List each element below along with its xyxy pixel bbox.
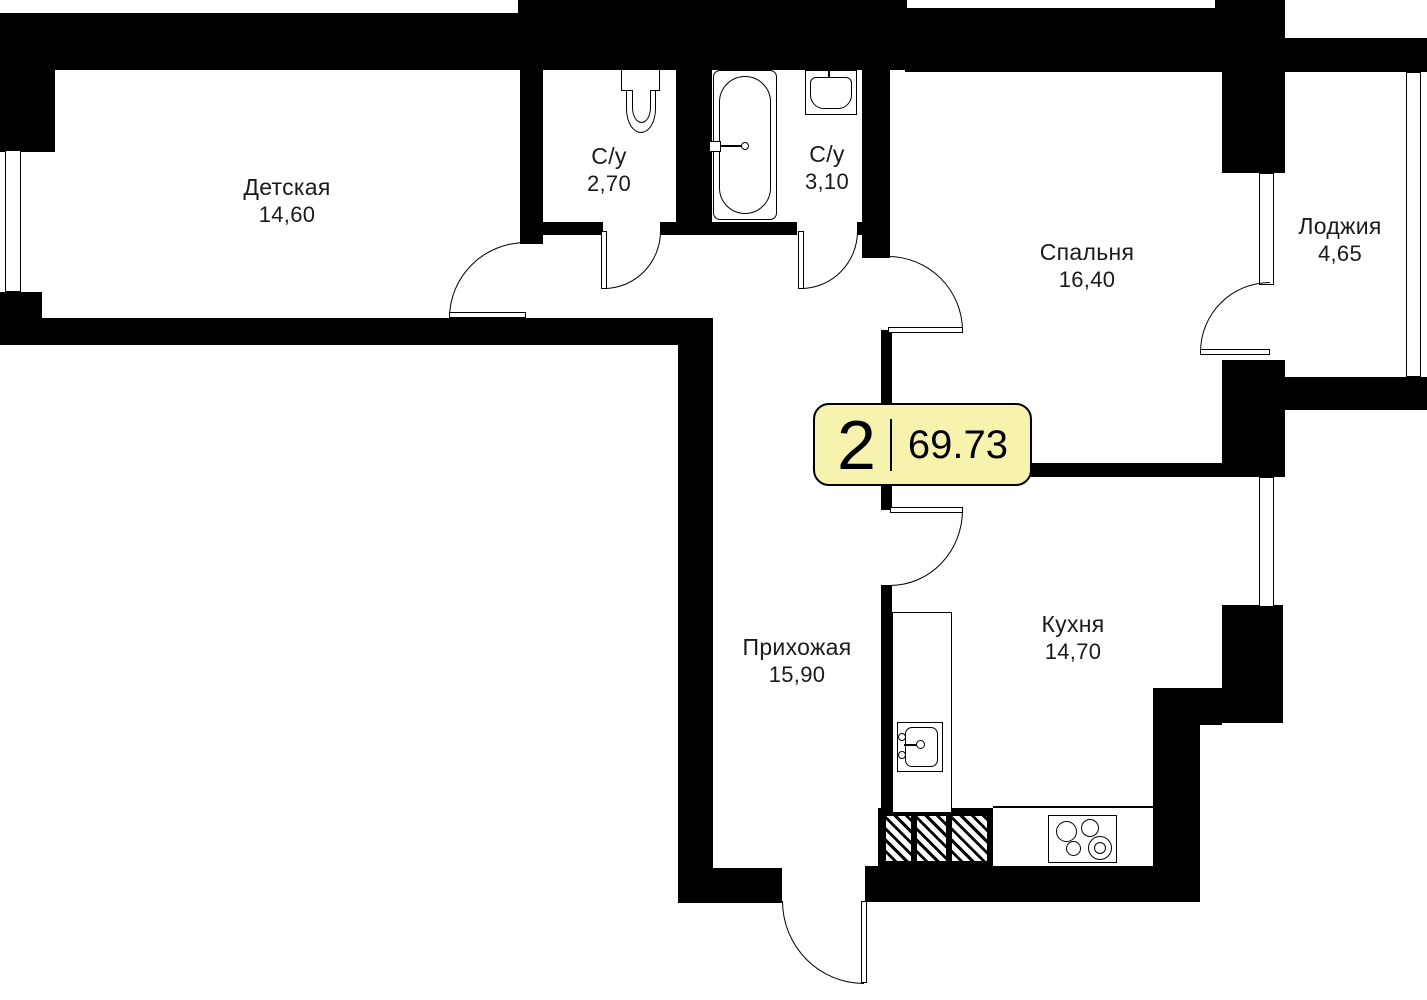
door-arc [890, 510, 963, 586]
room-label-spalnya: Спальня 16,40 [987, 239, 1187, 293]
area-badge: 2 69.73 [813, 403, 1032, 486]
wall [857, 222, 890, 235]
badge-divider [890, 419, 892, 471]
room-name: С/у [777, 141, 877, 168]
room-label-loggia: Лоджия 4,65 [1260, 213, 1420, 267]
vent-shaft [952, 816, 987, 861]
kitchen-sink-knob [898, 733, 906, 741]
room-area: 3,10 [777, 168, 877, 195]
wall [1222, 605, 1283, 723]
floor-plan: Детская 14,60 С/у 2,70 С/у 3,10 Спальня … [0, 0, 1427, 1000]
wall [0, 13, 520, 70]
room-area: 4,65 [1260, 240, 1420, 267]
room-name: Спальня [987, 239, 1187, 266]
stove-burner [1081, 819, 1099, 837]
wall [1285, 377, 1427, 410]
door-leaf [890, 507, 963, 513]
badge-rooms-count: 2 [837, 410, 876, 480]
wall [881, 585, 892, 810]
room-name: Прихожая [697, 634, 897, 661]
wall [676, 68, 712, 235]
wall [1222, 72, 1285, 173]
kitchen-sink-knob [898, 751, 906, 759]
room-name: Лоджия [1260, 213, 1420, 240]
wall [1215, 0, 1285, 72]
window [1259, 477, 1274, 607]
door-arc [449, 242, 526, 318]
room-name: Кухня [973, 611, 1173, 638]
wall [1285, 38, 1427, 72]
wall [678, 868, 782, 903]
door-arc [782, 901, 864, 984]
door-arc [888, 256, 963, 331]
room-label-detskaya: Детская 14,60 [187, 174, 387, 228]
room-label-su-small: С/у 2,70 [559, 143, 659, 197]
room-area: 16,40 [987, 266, 1187, 293]
room-label-kuhnya: Кухня 14,70 [973, 611, 1173, 665]
wall [0, 292, 42, 318]
wall [518, 0, 907, 70]
vent-shaft [886, 816, 911, 861]
sink-basin [810, 77, 852, 109]
room-area: 15,90 [697, 661, 897, 688]
room-name: Детская [187, 174, 387, 201]
kitchen-counter [892, 612, 952, 813]
bathtub-faucet-handle [709, 141, 721, 152]
room-area: 14,60 [187, 201, 387, 228]
wall [0, 13, 55, 152]
wall [1153, 723, 1200, 902]
kitchen-counter-edge [993, 806, 1153, 808]
room-label-su-big: С/у 3,10 [777, 141, 877, 195]
wall [532, 222, 603, 235]
room-area: 2,70 [559, 170, 659, 197]
wall [1153, 688, 1222, 725]
door-leaf [449, 312, 526, 318]
stove-burner [1056, 821, 1077, 842]
sink-faucet-bar [820, 64, 838, 67]
badge-total-area: 69.73 [908, 425, 1008, 465]
vent-shaft [917, 816, 946, 861]
door-leaf [601, 231, 607, 289]
stove-burner-inner [1094, 842, 1106, 854]
door-leaf [861, 901, 867, 983]
wall [660, 222, 797, 235]
door-arc [801, 231, 858, 289]
window [5, 150, 21, 292]
door-arc [1200, 282, 1270, 352]
toilet-bowl-inner [632, 90, 651, 123]
door-leaf [798, 231, 804, 289]
door-leaf [1200, 349, 1270, 355]
room-name: С/у [559, 143, 659, 170]
wall [1222, 360, 1285, 477]
bathtub-drain [741, 142, 749, 150]
door-leaf [888, 327, 963, 333]
wall [520, 68, 543, 244]
wall [905, 8, 1217, 72]
kitchen-sink-faucet-dot [916, 740, 925, 749]
wall [678, 332, 713, 903]
stove-burner [1066, 841, 1081, 856]
wall [865, 866, 1200, 902]
door-arc [604, 231, 661, 289]
room-area: 14,70 [973, 638, 1173, 665]
toilet-tank [621, 69, 660, 91]
wall [0, 318, 713, 345]
room-label-prihozhaya: Прихожая 15,90 [697, 634, 897, 688]
